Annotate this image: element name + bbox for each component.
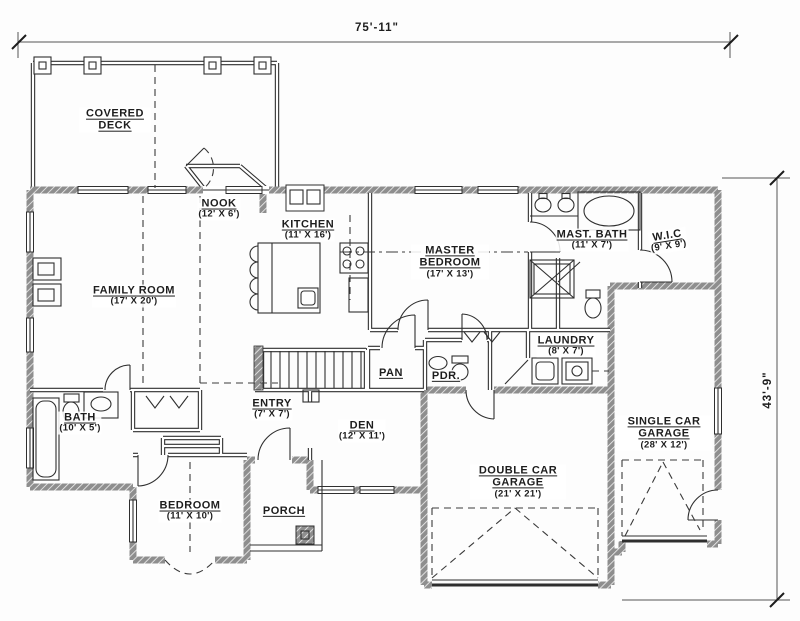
- master-bath-vanity: [530, 194, 578, 217]
- kitchen-sink: [286, 185, 324, 211]
- deck-posts: [34, 57, 271, 74]
- bedroom-bay-window: [165, 560, 215, 574]
- master-shower: [530, 260, 574, 298]
- window-marker: [360, 487, 394, 494]
- washer-dryer: [532, 358, 592, 384]
- deck-door-leaf: [186, 148, 204, 166]
- window-marker: [715, 388, 722, 434]
- fixtures: [33, 185, 640, 551]
- master-bath-door: [530, 222, 560, 252]
- window-marker: [27, 318, 34, 352]
- pantry-door: [382, 315, 415, 348]
- window-marker: [130, 500, 137, 542]
- family-room-ceiling-lines: [143, 196, 200, 386]
- window-marker: [415, 187, 462, 194]
- closet-rod-symbol: [146, 396, 188, 408]
- powder-fixtures: [429, 356, 468, 380]
- covered-deck-structure: [33, 57, 277, 190]
- porch-post: [296, 526, 314, 544]
- window-marker: [318, 487, 354, 494]
- window-marker: [478, 187, 518, 194]
- powder-door: [462, 314, 487, 340]
- dimension-lines: [12, 32, 790, 607]
- floor-plan-drawing: [0, 0, 800, 621]
- single-garage-door-swing: [622, 460, 703, 536]
- bedroom-door: [138, 455, 168, 486]
- kitchen-range: [340, 243, 368, 312]
- wic-door: [640, 250, 672, 282]
- stairs: [254, 346, 361, 402]
- hall-closet-symbol: [464, 332, 500, 342]
- interior-walls: [30, 193, 640, 460]
- laundry-door: [505, 360, 528, 384]
- window-marker: [148, 187, 186, 194]
- master-tub: [578, 192, 640, 230]
- kitchen-island: [250, 243, 320, 313]
- master-toilet: [585, 290, 601, 318]
- floor-plan: 75'-11" 43'-9" COVERED DECK NOOK (12' X …: [0, 0, 800, 621]
- window-marker: [27, 212, 34, 252]
- doors: [105, 222, 718, 520]
- fireplace: [33, 258, 61, 306]
- window-marker: [226, 187, 262, 194]
- bath-fixtures: [33, 392, 118, 480]
- deck-door-swing: [203, 148, 214, 189]
- front-door: [258, 428, 290, 460]
- window-marker: [78, 187, 128, 194]
- garage-entry-door: [466, 390, 494, 419]
- bath-door: [105, 365, 130, 390]
- double-garage-door-swing: [432, 508, 598, 578]
